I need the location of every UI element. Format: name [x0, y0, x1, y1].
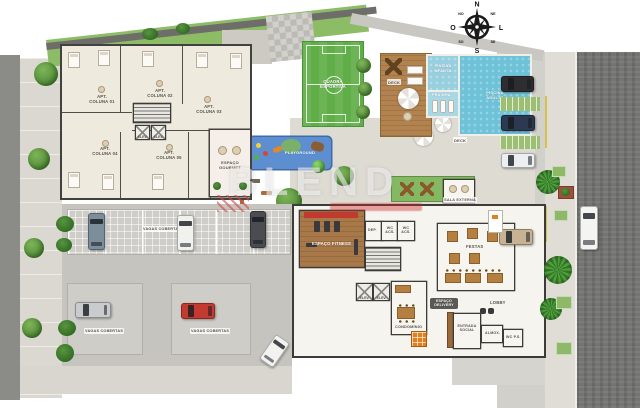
- lobby-label: LOBBY: [490, 300, 506, 305]
- tree: [356, 58, 371, 73]
- condo-office-label: CONDOMÍNIO: [395, 325, 422, 330]
- water-lounger: [440, 100, 446, 113]
- watermark-text: BLEND: [228, 160, 401, 205]
- interior-wall: [120, 46, 121, 112]
- shade-sail: [385, 58, 402, 75]
- sports-court: QUADRA ESPORTIVA: [303, 42, 363, 126]
- parking-grass-strip: [500, 136, 540, 149]
- palm-tree: [544, 256, 572, 284]
- tree: [358, 82, 372, 96]
- sun-lounger: [407, 66, 423, 74]
- delivery-lockers: [412, 332, 426, 346]
- wc-label: WC ACS.: [383, 226, 397, 235]
- entrance-driveway: [452, 355, 545, 385]
- stairs: [366, 248, 400, 270]
- compass-sw: SO: [458, 40, 463, 44]
- treadmill: [314, 221, 320, 232]
- covered-parking-label: VAGAS COBERTAS: [84, 328, 124, 334]
- desk: [396, 286, 410, 292]
- unit-label: APT. COLUNA 05: [152, 150, 186, 161]
- interior-wall: [120, 132, 121, 198]
- lobby-chair: [480, 308, 486, 314]
- chairs: [397, 303, 415, 307]
- x-table: [420, 182, 434, 196]
- compass-s: S: [475, 48, 480, 54]
- playground-toy: [256, 143, 261, 148]
- sidewalk-planter: [556, 342, 572, 355]
- elevator: ELEV.: [136, 126, 149, 139]
- mailbox-wall: [447, 312, 454, 348]
- bed: [142, 51, 154, 67]
- sidewalk-planter: [554, 210, 568, 221]
- wc-accessible: WC ACS.: [382, 222, 398, 240]
- round-table: [156, 80, 163, 87]
- bed: [152, 174, 164, 190]
- bottom-sidewalk: [20, 366, 292, 394]
- car-red: [181, 303, 215, 319]
- round-table: [449, 185, 457, 193]
- lobby-chair: [488, 308, 494, 314]
- unit-label: APT. COLUNA 04: [88, 146, 122, 157]
- compass-nw: NO: [458, 12, 464, 16]
- water-lounger: [432, 100, 438, 113]
- tree: [356, 105, 370, 119]
- bed: [196, 52, 208, 68]
- wc-accessible: WC ACS.: [398, 222, 414, 240]
- bed: [230, 53, 242, 69]
- bush: [56, 344, 74, 362]
- unit-label: APT. COLUNA 02: [143, 88, 177, 99]
- patio-deck-label: DECK: [453, 137, 467, 143]
- condo-office: CONDOMÍNIO: [392, 282, 426, 334]
- party-table: [488, 232, 497, 241]
- bed: [98, 50, 110, 66]
- bush: [56, 216, 74, 232]
- indoor-plant: [213, 182, 221, 190]
- car-silver: [75, 302, 111, 318]
- compass-rose: N S L O NO NE SO SE: [446, 0, 508, 54]
- bed: [102, 174, 114, 190]
- sports-court-label: QUADRA ESPORTIVA: [316, 79, 350, 90]
- meeting-table: [398, 308, 414, 318]
- tree: [22, 318, 42, 338]
- gym-equipment-row: [304, 212, 358, 218]
- water-lounger: [448, 100, 454, 113]
- yellow-curb-mark: [545, 96, 547, 148]
- delivery-label: ESPAÇO DELIVERY: [431, 299, 457, 308]
- round-table: [403, 112, 412, 121]
- outdoor-room-label: SALA EXTERNA: [443, 197, 477, 203]
- umbrella-icon: [398, 88, 419, 109]
- watermark-red-line: [330, 203, 422, 211]
- buffet-table: [488, 274, 502, 282]
- compass-w: O: [450, 25, 456, 32]
- left-road: [0, 55, 20, 400]
- beach-entry: PRAINHA: [428, 92, 458, 116]
- tree: [24, 238, 44, 258]
- storage-label: ALMOX.: [485, 331, 500, 335]
- interior-wall: [188, 132, 189, 198]
- buffet-table: [466, 274, 480, 282]
- sidewalk-planter: [552, 166, 566, 177]
- left-sidewalk: [20, 58, 62, 398]
- bed: [68, 172, 80, 188]
- interior-wall: [62, 112, 132, 113]
- round-table: [461, 185, 469, 193]
- buffet-table: [446, 274, 460, 282]
- umbrella-icon: [435, 116, 451, 132]
- playground-toy: [263, 151, 268, 156]
- fitness-label: ESPAÇO FITNESS: [312, 241, 351, 246]
- goal-box-top: [322, 45, 346, 54]
- planter-bush: [561, 188, 570, 196]
- x-table: [400, 182, 414, 196]
- goal-box-bottom: [322, 114, 346, 123]
- tree: [34, 62, 58, 86]
- party-table: [468, 229, 477, 238]
- elevator: ELEV.: [152, 126, 165, 139]
- tree: [28, 148, 50, 170]
- elevator: ELEV.: [374, 284, 389, 300]
- car-blue-gray: [88, 213, 105, 250]
- site-plan: DECK QUADRA ESPORTIVA DECK PISCINA INFAN…: [0, 0, 640, 408]
- playground-label: PLAYGROUND: [285, 150, 315, 155]
- round-table: [98, 86, 105, 93]
- round-table: [218, 146, 227, 155]
- party-table: [448, 232, 457, 241]
- bush: [56, 238, 72, 252]
- social-entrance: ENTRADA SOCIAL: [454, 314, 480, 348]
- car-black-suv: [501, 76, 534, 92]
- treadmill: [324, 221, 330, 232]
- street-kiosk: [489, 211, 502, 232]
- covered-parking-block: [172, 284, 250, 354]
- dep-label: DEP.: [368, 228, 377, 232]
- covered-parking-label: VAGAS COBERTAS: [190, 328, 230, 334]
- sidewalk-planter: [556, 296, 572, 309]
- yellow-curb-mark: [545, 206, 547, 242]
- party-table: [450, 254, 459, 263]
- chairs: [397, 319, 415, 323]
- bush: [58, 320, 76, 336]
- unit-label: APT. COLUNA 03: [192, 104, 226, 115]
- fitness-room: ESPAÇO FITNESS: [300, 211, 364, 267]
- wc-label: WC ACS.: [399, 226, 413, 235]
- car-tan: [499, 229, 533, 245]
- stairs: [134, 104, 170, 122]
- chairs: [444, 268, 504, 273]
- interior-wall: [182, 46, 183, 104]
- compass-e: L: [499, 25, 504, 32]
- party-table: [470, 254, 479, 263]
- delivery-badge: ESPAÇO DELIVERY: [430, 298, 458, 309]
- kids-pool: PISCINA INFANTIL: [428, 56, 458, 90]
- wc-ps-label: WC P.S.: [506, 335, 521, 339]
- unit-label: APT. COLUNA 01: [85, 94, 119, 105]
- curb-line: [575, 52, 577, 408]
- playground-slide: [272, 146, 282, 154]
- wc-ps-room: WC P.S.: [504, 330, 522, 346]
- sun-lounger: [407, 77, 423, 85]
- kids-pool-label: PISCINA INFANTIL: [430, 64, 456, 73]
- compass-ne: NE: [491, 12, 497, 16]
- party-room-label: FESTAS: [466, 244, 483, 249]
- car-graphite: [250, 211, 266, 248]
- social-entrance-label: ENTRADA SOCIAL: [455, 324, 479, 333]
- treadmill: [334, 221, 340, 232]
- beach-entry-label: PRAINHA: [432, 93, 451, 98]
- compass-se: SE: [491, 40, 496, 44]
- round-table: [232, 146, 241, 155]
- compass-n: N: [474, 2, 479, 9]
- round-table: [204, 96, 211, 103]
- kiosk-detail: [492, 215, 498, 219]
- deck-label: DECK: [387, 79, 401, 85]
- covered-parking-block: [68, 284, 142, 354]
- car-white-parked: [501, 153, 535, 168]
- weight-rack: [354, 239, 358, 255]
- dep-room: DEP.: [366, 222, 382, 240]
- car-dark-blue: [501, 115, 535, 131]
- bush: [176, 23, 190, 34]
- bush: [142, 28, 158, 40]
- bed: [68, 52, 80, 68]
- red-planter: [558, 186, 574, 199]
- wood-deck: DECK: [381, 54, 431, 136]
- elevator: ELEV.: [357, 284, 372, 300]
- parking-grass-strip: [500, 97, 540, 111]
- storage-room: ALMOX.: [482, 326, 502, 342]
- car-driving: [580, 206, 598, 250]
- car-white: [177, 215, 194, 251]
